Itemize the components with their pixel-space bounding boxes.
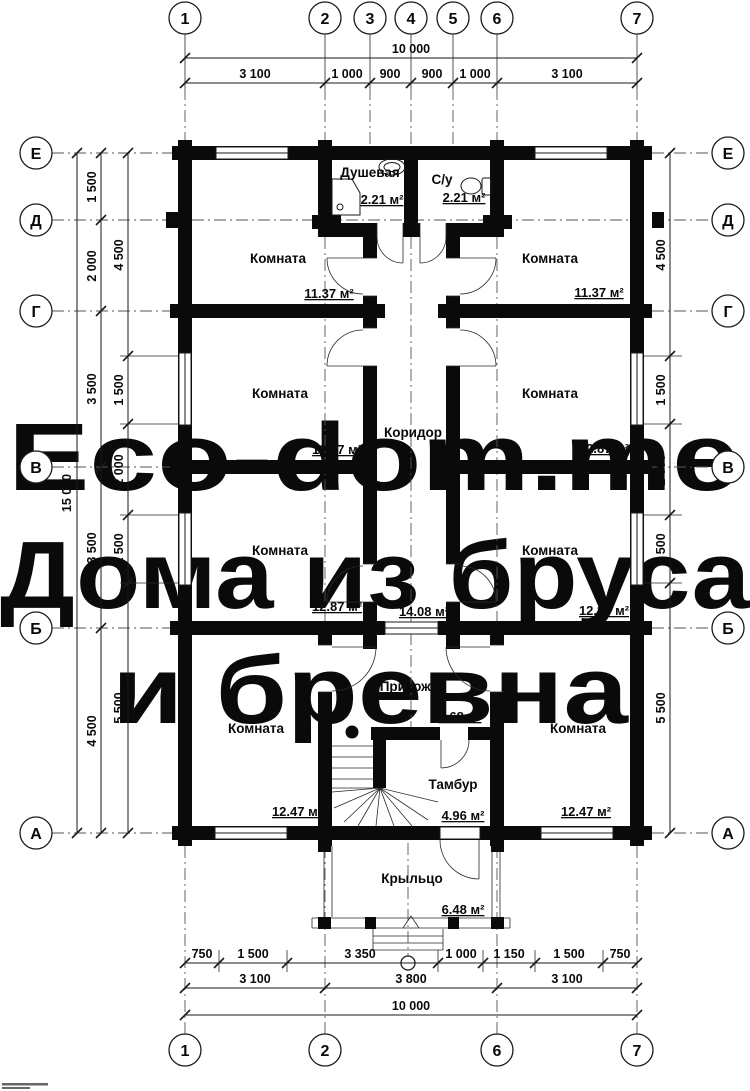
- window-left-upper: [179, 353, 191, 425]
- room-tr-area: 11.37 м²: [574, 285, 624, 300]
- room-ml-name: Комната: [252, 386, 309, 401]
- dim-left-axis-1: 2 000: [85, 250, 99, 281]
- window-top-left: [216, 147, 288, 159]
- dim-bottom-axis-2: 3 100: [551, 972, 582, 986]
- room-bl-name: Комната: [228, 721, 285, 736]
- axis-left-e: Е: [31, 146, 42, 163]
- dim-bottom-total: 10 000: [392, 999, 430, 1013]
- room-br-name: Комната: [550, 721, 607, 736]
- door-entrance: [440, 840, 479, 879]
- room-br-area: 12.47 м²: [561, 804, 612, 819]
- dim-bottom-det-1: 1 500: [237, 947, 268, 961]
- shower-tray-icon: [332, 179, 360, 215]
- window-right-lower: [631, 513, 643, 585]
- room-tl-area: 11.37 м²: [304, 286, 354, 301]
- dim-top-total: 10 000: [392, 42, 430, 56]
- room-shower-name: Душевая: [340, 165, 400, 180]
- dim-bottom-det-0: 750: [192, 947, 213, 961]
- dim-bottom-det-6: 750: [610, 947, 631, 961]
- dim-bottom-det-3: 1 000: [445, 947, 476, 961]
- dim-bottom-det-5: 1 500: [553, 947, 584, 961]
- window-left-lower: [179, 513, 191, 585]
- axis-top-6: 6: [493, 11, 502, 28]
- dim-right-4: 5 500: [654, 692, 668, 723]
- door-room-top-right: [460, 258, 496, 294]
- room-corridor-name: Коридор: [384, 425, 442, 440]
- axis-top-4: 4: [407, 11, 416, 28]
- room-bl-area: 12.47 м²: [272, 804, 323, 819]
- axis-bubbles-bottom: 1 2 6 7: [169, 1034, 653, 1066]
- dim-left-win-4: 5 500: [112, 692, 126, 723]
- door-room-mid-left: [327, 330, 363, 366]
- room-lr-area: 12.87 м²: [579, 603, 630, 618]
- floor-plan-page: Eco-dom.me Дома из бруса и бревна: [0, 0, 750, 1091]
- room-wc-area: 2.21 м²: [443, 190, 487, 205]
- dim-left-win-0: 4 500: [112, 239, 126, 270]
- dim-top-seg-0: 3 100: [239, 67, 270, 81]
- axis-top-3: 3: [366, 11, 375, 28]
- dim-bottom-det-4: 1 150: [493, 947, 524, 961]
- room-ml-area: 12.87 м²: [312, 442, 363, 457]
- floor-plan-drawing: Eco-dom.me Дома из бруса и бревна: [0, 0, 750, 1091]
- dim-bottom-axis-1: 3 800: [395, 972, 426, 986]
- axis-top-1: 1: [181, 11, 190, 28]
- door-room-mid-right: [460, 330, 496, 366]
- axis-right-e: Е: [723, 146, 734, 163]
- axis-left-b: Б: [30, 621, 42, 638]
- axis-top-7: 7: [633, 11, 642, 28]
- axis-left-a: А: [30, 826, 42, 843]
- dim-bottom-det-2: 3 350: [344, 947, 375, 961]
- window-bottom-left: [215, 827, 287, 839]
- dim-left-win-1: 1 500: [112, 374, 126, 405]
- room-tambour-area: 4.96 м²: [442, 808, 486, 823]
- axis-left-g: Г: [31, 304, 40, 321]
- dim-right-1: 1 500: [654, 374, 668, 405]
- fine-print-smudge: [2, 1083, 48, 1089]
- room-ll-name: Комната: [252, 543, 309, 558]
- dim-right-2: 2 000: [654, 454, 668, 485]
- room-hall-name: Прихожая: [380, 679, 447, 694]
- window-top-right: [535, 147, 607, 159]
- dim-right-3: 1 500: [654, 533, 668, 564]
- dim-left-total: 15 000: [60, 474, 74, 512]
- room-shower-area: 2.21 м²: [361, 192, 405, 207]
- dim-right-0: 4 500: [654, 239, 668, 270]
- window-right-upper: [631, 353, 643, 425]
- room-tr-name: Комната: [522, 251, 579, 266]
- door-tambour: [441, 740, 469, 768]
- stair-newel-post: [346, 726, 359, 739]
- threshold-entrance: [440, 827, 480, 839]
- axis-bottom-1: 1: [181, 1043, 190, 1060]
- room-lr-name: Комната: [522, 543, 579, 558]
- axis-left-v: В: [30, 460, 42, 477]
- dim-top-seg-2: 900: [380, 67, 401, 81]
- dim-left-axis-2: 3 500: [85, 373, 99, 404]
- room-wc-name: С/у: [431, 172, 453, 187]
- dim-bottom-axis-0: 3 100: [239, 972, 270, 986]
- dim-left-axis-0: 1 500: [85, 171, 99, 202]
- window-bottom-right: [541, 827, 613, 839]
- axis-left-d: Д: [30, 213, 42, 230]
- room-corridor-area: 14.08 м²: [399, 604, 450, 619]
- room-mr-area: 12.87 м²: [579, 441, 630, 456]
- room-ll-area: 12.87 м²: [312, 599, 363, 614]
- threshold-corridor-hall: [385, 622, 438, 634]
- axis-right-v: В: [722, 460, 734, 477]
- dim-top-seg-4: 1 000: [459, 67, 490, 81]
- axis-bottom-2: 2: [321, 1043, 330, 1060]
- dim-left-win-2: 2 000: [112, 454, 126, 485]
- room-hall-area: 7.68 м²: [439, 709, 483, 724]
- dim-left-axis-3: 3 500: [85, 532, 99, 563]
- dim-left-win-3: 1 500: [112, 533, 126, 564]
- room-tambour-name: Тамбур: [429, 777, 478, 792]
- axis-bottom-7: 7: [633, 1043, 642, 1060]
- axis-right-a: А: [722, 826, 734, 843]
- room-porch-area: 6.48 м²: [442, 902, 486, 917]
- dim-top-seg-5: 3 100: [551, 67, 582, 81]
- door-wc: [420, 237, 446, 263]
- axis-top-2: 2: [321, 11, 330, 28]
- room-tl-name: Комната: [250, 251, 307, 266]
- axis-bottom-6: 6: [493, 1043, 502, 1060]
- axis-right-g: Г: [723, 304, 732, 321]
- room-mr-name: Комната: [522, 386, 579, 401]
- dimensions-top: 10 000 3 100 1 000 900 900 1 000 3 100: [180, 34, 642, 88]
- axis-top-5: 5: [449, 11, 458, 28]
- door-shower: [377, 237, 403, 263]
- axis-right-b: Б: [722, 621, 734, 638]
- room-porch-name: Крыльцо: [381, 871, 442, 886]
- dim-top-seg-3: 900: [422, 67, 443, 81]
- dim-left-axis-4: 4 500: [85, 715, 99, 746]
- axis-right-d: Д: [722, 213, 734, 230]
- dim-top-seg-1: 1 000: [331, 67, 362, 81]
- axis-bubbles-top: 1 2 3 4 5 6 7: [169, 2, 653, 34]
